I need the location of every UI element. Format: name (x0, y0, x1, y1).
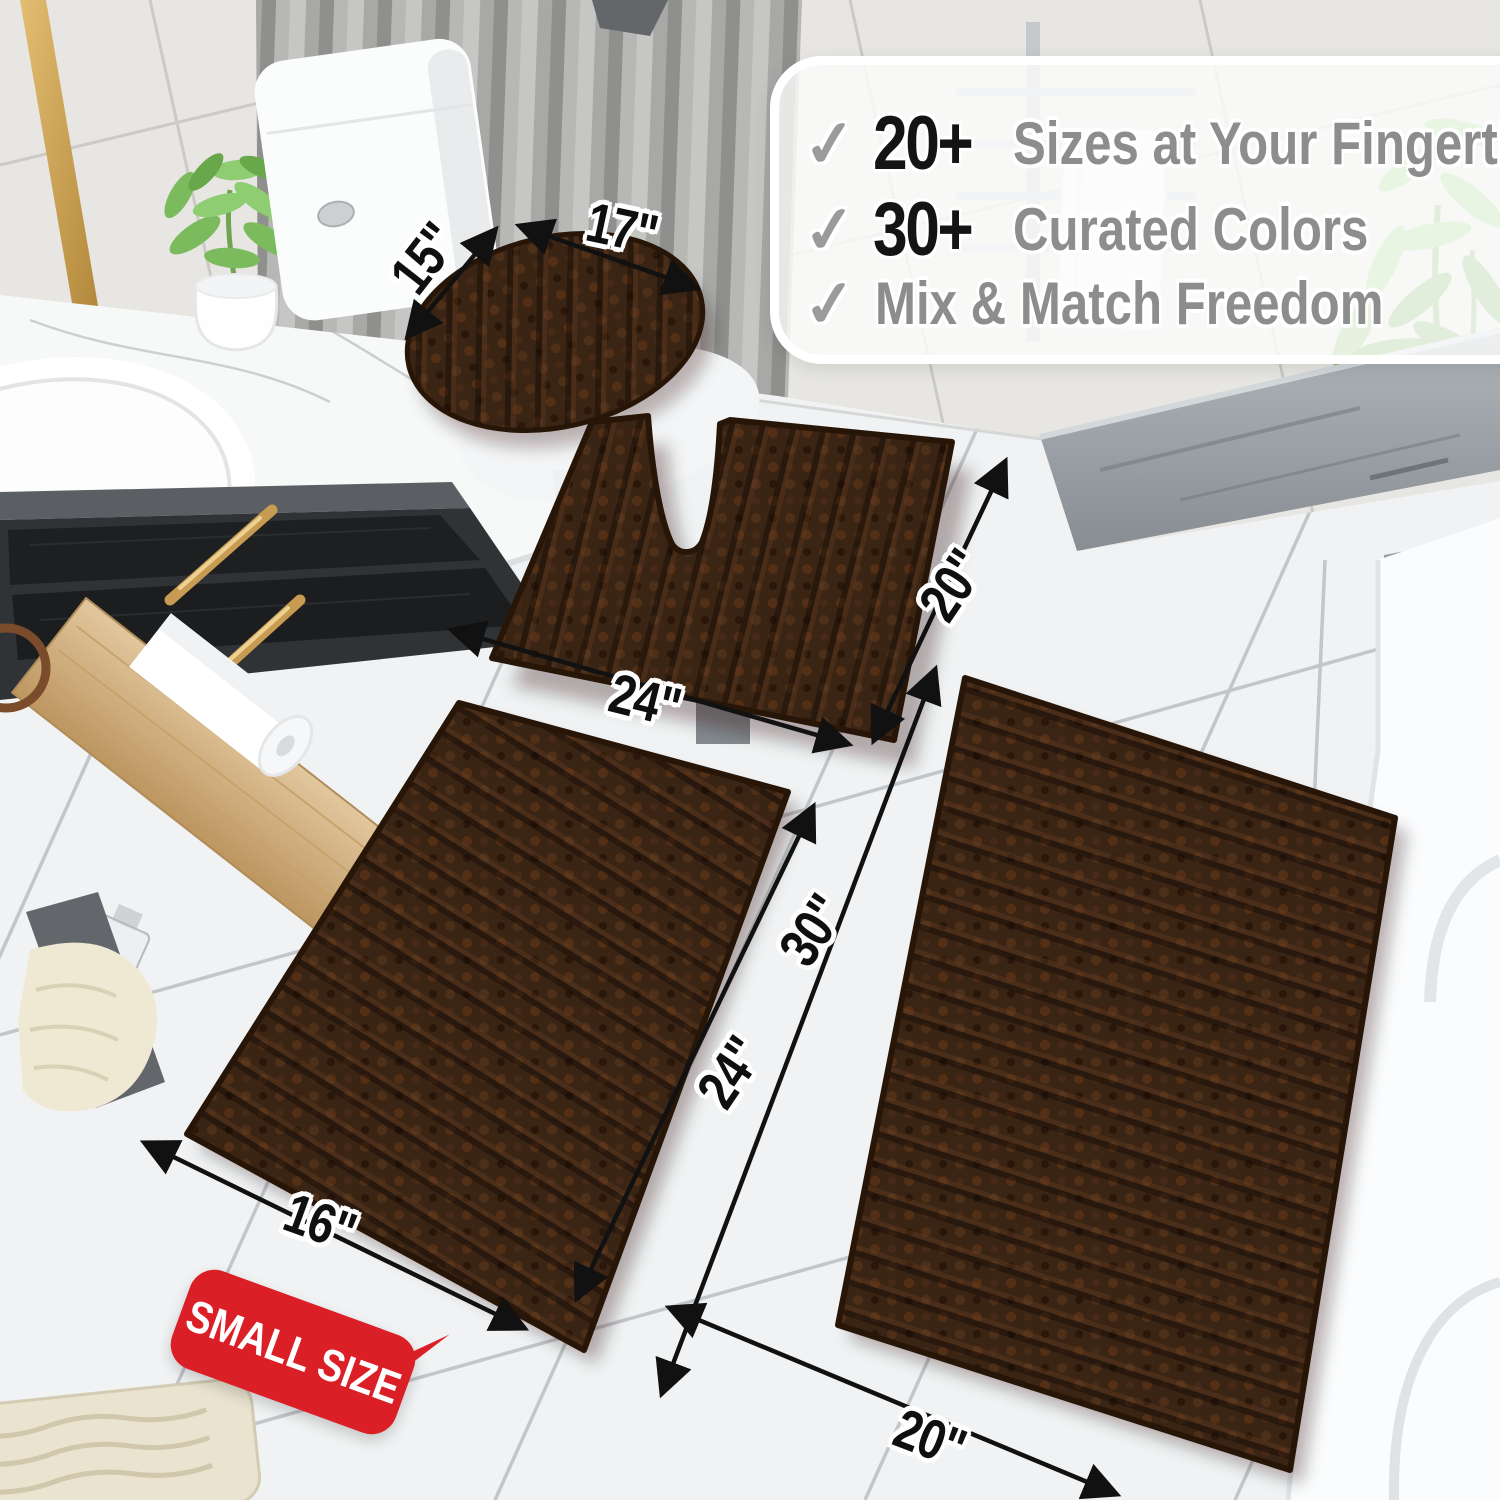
feature-row: ✓ 20+ Sizes at Your Fingertips (803, 101, 1500, 185)
checkmark-icon: ✓ (799, 102, 876, 184)
feature-label: Mix & Match Freedom (875, 269, 1495, 338)
checkmark-icon: ✓ (799, 262, 876, 344)
feature-label: Curated Colors (1013, 195, 1446, 264)
feature-row: ✓ 30+ Curated Colors (803, 187, 1446, 271)
checkmark-icon: ✓ (799, 188, 876, 270)
feature-label: Sizes at Your Fingertips (1013, 109, 1500, 178)
product-infographic: MISQ (0, 0, 1500, 1500)
feature-callout-card: ✓ 20+ Sizes at Your Fingertips ✓ 30+ Cur… (770, 56, 1500, 364)
feature-row: ✓ Mix & Match Freedom (803, 261, 1495, 345)
feature-number: 20+ (873, 100, 999, 187)
feature-number: 30+ (873, 186, 999, 273)
